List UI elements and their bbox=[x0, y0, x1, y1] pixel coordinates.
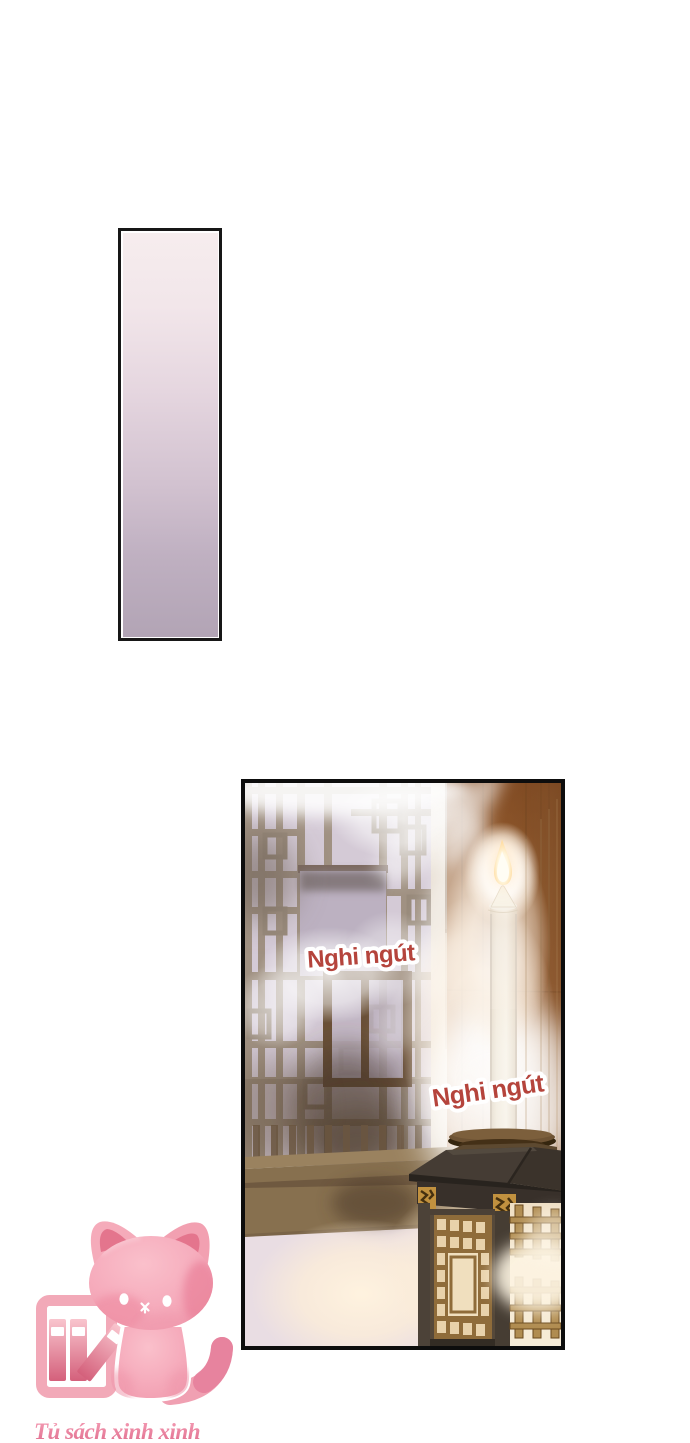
svg-text:Tủ sách xinh xinh: Tủ sách xinh xinh bbox=[34, 1419, 200, 1443]
